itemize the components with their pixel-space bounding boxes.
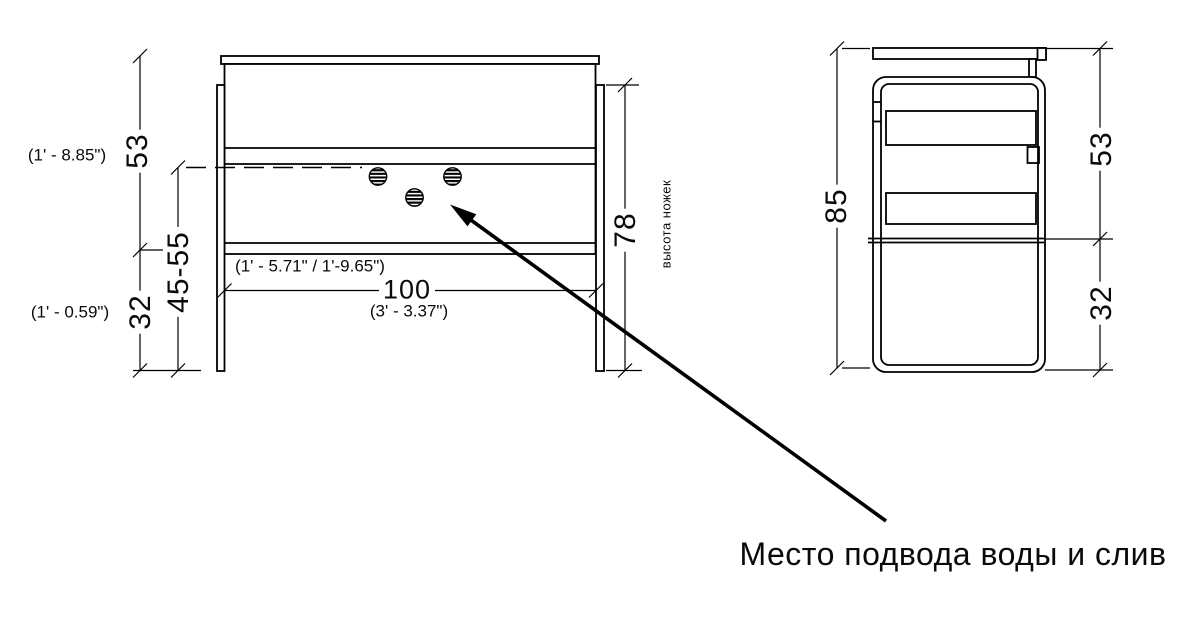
front-view-cabinet — [217, 56, 604, 371]
dim-32-front: 32 — [125, 290, 157, 333]
dim-45-55-imperial: (1' - 5.71" / 1'-9.65") — [235, 258, 385, 275]
dim-45-55: 45-55 — [163, 227, 195, 317]
technical-drawing-page: 53 (1' - 8.85") 45-55 (1' - 5.71" / 1'-9… — [0, 0, 1192, 617]
dim-100-width: 100 — [379, 276, 435, 305]
front-body — [225, 64, 596, 254]
side-tabletop-lip — [1038, 48, 1047, 60]
front-tabletop — [221, 56, 599, 64]
side-tabletop — [873, 48, 1046, 59]
dim-32-side: 32 — [1086, 281, 1118, 324]
legs-height-note: высота ножек — [660, 180, 673, 268]
water-point-2 — [406, 189, 423, 206]
dim-85-side: 85 — [821, 184, 853, 227]
side-rear-connector — [1029, 59, 1036, 77]
dim-53-front-imperial: (1' - 8.85") — [28, 147, 106, 164]
dim-78-legs: 78 — [610, 208, 642, 251]
water-point-3 — [444, 168, 461, 185]
front-right-leg — [596, 85, 604, 371]
dim-53-front: 53 — [122, 129, 154, 172]
dim-32-front-imperial: (1' - 0.59") — [31, 304, 109, 321]
side-view-cabinet — [868, 48, 1046, 372]
dim-53-side: 53 — [1086, 127, 1118, 170]
water-supply-callout-label: Место подвода воды и слив — [739, 538, 1166, 570]
front-left-leg — [217, 85, 225, 371]
dim-100-width-imperial: (3' - 3.37") — [370, 303, 448, 320]
water-point-1 — [369, 168, 386, 185]
